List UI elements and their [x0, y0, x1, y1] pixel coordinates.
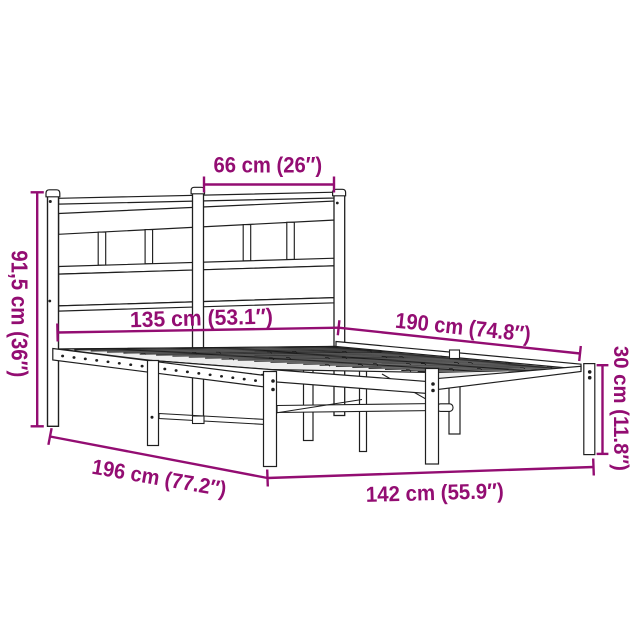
svg-text:135 cm (53.1″): 135 cm (53.1″) — [130, 304, 274, 333]
svg-text:66 cm (26″): 66 cm (26″) — [213, 152, 322, 177]
svg-text:142 cm (55.9″): 142 cm (55.9″) — [365, 478, 504, 507]
svg-text:30 cm (11.8″): 30 cm (11.8″) — [609, 346, 633, 471]
svg-text:91,5 cm (36″): 91,5 cm (36″) — [7, 250, 33, 377]
